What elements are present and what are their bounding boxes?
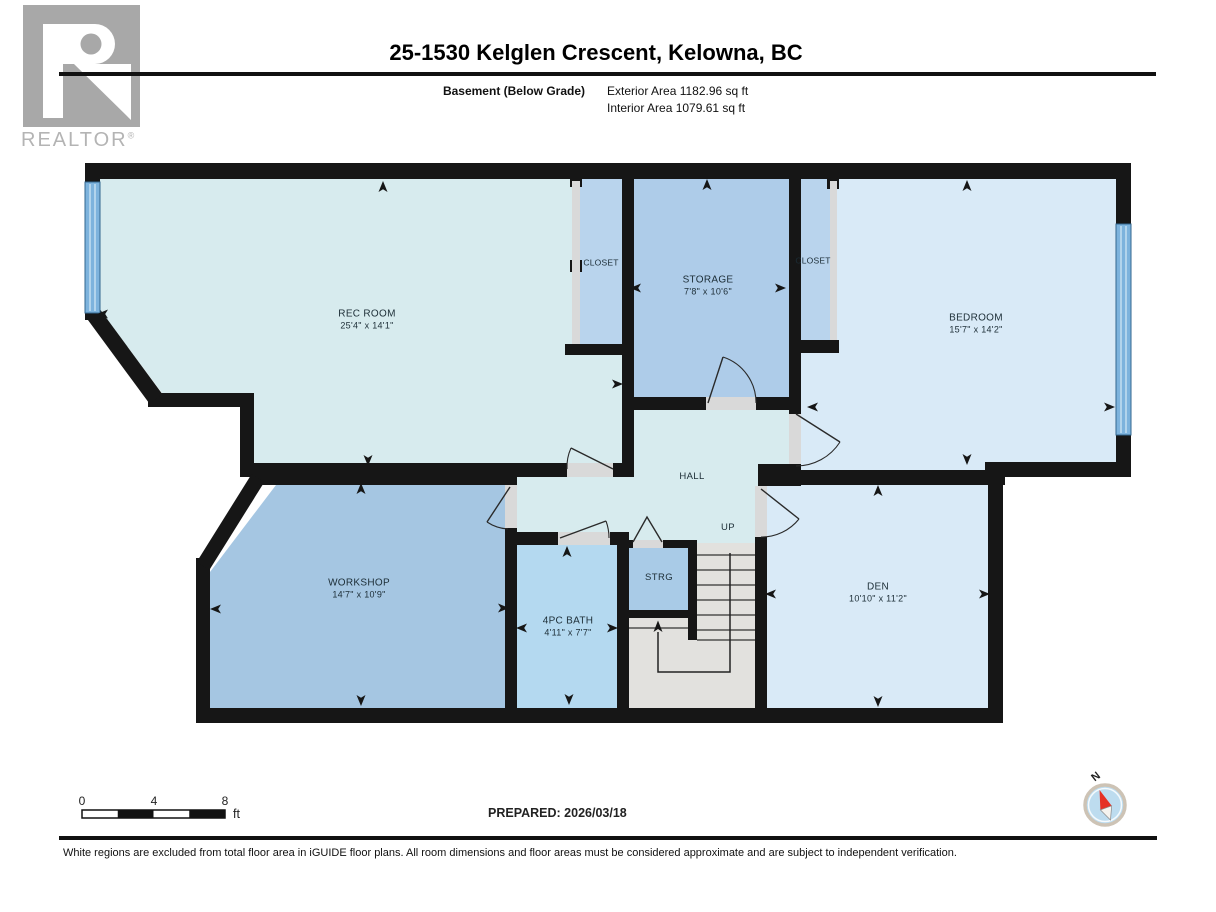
room-label-hall: HALL [679, 471, 704, 483]
room-label-bedroom: BEDROOM 15'7" x 14'2" [949, 312, 1003, 337]
compass [1085, 785, 1125, 825]
realtor-wordmark-text: REALTOR [21, 129, 128, 151]
registered-mark: ® [128, 130, 137, 140]
window-right [1116, 224, 1131, 435]
realtor-wordmark: REALTOR® [21, 129, 136, 152]
floor-plan [85, 163, 1131, 723]
scale-tick-0: 0 [79, 794, 86, 808]
interior-area: Interior Area 1079.61 sq ft [607, 101, 745, 115]
scale-unit: ft [233, 807, 240, 821]
exterior-area: Exterior Area 1182.96 sq ft [607, 84, 748, 98]
scale-tick-8: 8 [222, 794, 229, 808]
prepared-date: PREPARED: 2026/03/18 [488, 806, 627, 820]
window-left [85, 182, 100, 313]
footer-divider [59, 836, 1157, 840]
room-label-strg: STRG [645, 572, 673, 584]
room-label-den: DEN 10'10" x 11'2" [849, 581, 907, 606]
floor-plan-page: 25-1530 Kelglen Crescent, Kelowna, BC Ba… [0, 0, 1216, 912]
header-divider [59, 72, 1156, 76]
room-label-rec-room: REC ROOM 25'4" x 14'1" [338, 308, 395, 333]
scale-tick-4: 4 [151, 794, 158, 808]
room-label-closet-right: CLOSET [795, 255, 830, 266]
scale-bar [82, 810, 225, 818]
room-label-storage: STORAGE 7'8" x 10'6" [683, 274, 734, 299]
footer-disclaimer: White regions are excluded from total fl… [63, 847, 957, 859]
stairs-up-label: UP [721, 522, 735, 534]
room-label-closet-left: CLOSET [583, 257, 618, 268]
realtor-logo [23, 5, 140, 127]
page-title: 25-1530 Kelglen Crescent, Kelowna, BC [389, 40, 802, 66]
room-label-workshop: WORKSHOP 14'7" x 10'9" [328, 577, 390, 602]
room-label-bath: 4PC BATH 4'11" x 7'7" [543, 615, 594, 640]
floor-label: Basement (Below Grade) [443, 84, 585, 98]
floor-plan-canvas [0, 0, 1216, 912]
